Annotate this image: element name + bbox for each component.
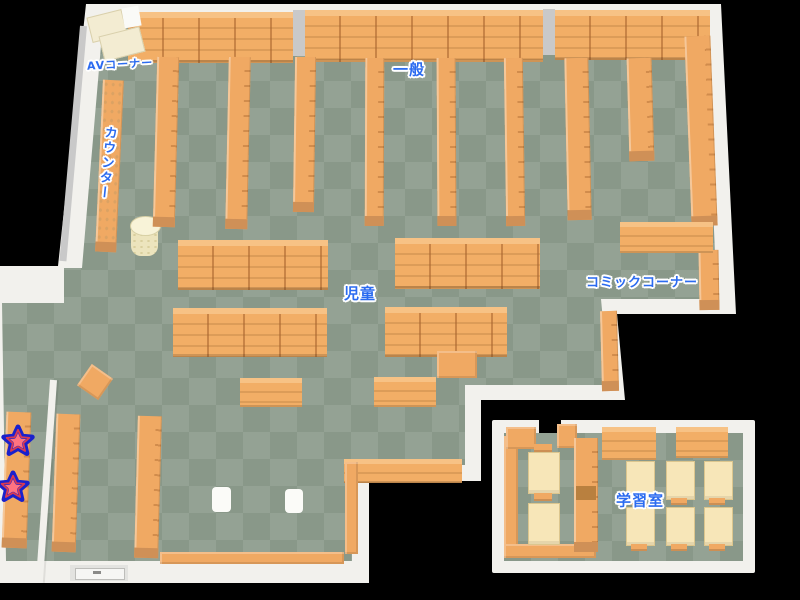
library-floor-map: AVコーナー 一般 カウンター 児童 コミックコーナー 学習室 (0, 0, 800, 600)
chair (671, 498, 687, 505)
chair (534, 493, 552, 501)
study-desk (666, 507, 695, 546)
bookshelf (225, 57, 251, 229)
chair (709, 498, 725, 505)
area-label-general[interactable]: 一般 (393, 59, 425, 80)
study-desk (666, 461, 695, 500)
study-desk (704, 461, 733, 500)
wall-bookshelf (345, 462, 358, 554)
star-marker[interactable] (1, 424, 35, 458)
study-bookshelf (602, 427, 656, 460)
study-desk (704, 507, 733, 546)
bookshelf (504, 58, 525, 226)
stool (212, 487, 231, 512)
wall-bookshelf-row (305, 10, 543, 62)
comic-bookshelf (620, 222, 713, 253)
bookshelf (134, 416, 162, 559)
bookshelf (293, 57, 316, 212)
entrance-door-panel (75, 568, 125, 580)
chair (631, 544, 647, 551)
low-bookshelf (178, 240, 328, 290)
picture-book-rack (374, 377, 436, 407)
bookshelf (627, 58, 655, 162)
study-counter (504, 436, 518, 554)
bookshelf (365, 58, 385, 226)
wall-bookshelf (160, 552, 344, 564)
picture-book-rack (240, 378, 302, 407)
area-label-comic-corner[interactable]: コミックコーナー (586, 272, 698, 291)
low-bookshelf (344, 459, 462, 483)
comic-bookshelf (600, 311, 619, 391)
chair (709, 544, 725, 551)
bookshelf (564, 58, 591, 220)
area-label-children[interactable]: 児童 (344, 283, 376, 304)
av-equipment (121, 6, 141, 29)
study-shelf (506, 427, 536, 449)
divider-gap (576, 486, 596, 500)
study-desk (626, 507, 655, 546)
wall-pillar (293, 10, 305, 56)
wall-bookshelf (698, 250, 719, 310)
study-table (528, 452, 560, 494)
low-bookshelf-end (437, 351, 477, 378)
bookshelf (52, 414, 81, 553)
area-label-study-room[interactable]: 学習室 (616, 490, 664, 511)
chair (534, 444, 552, 452)
low-bookshelf (385, 307, 507, 357)
bookshelf (437, 58, 457, 226)
bookshelf (153, 57, 179, 228)
study-bookshelf (676, 427, 728, 458)
star-marker[interactable] (0, 470, 30, 504)
low-bookshelf (173, 308, 327, 357)
door-handle (93, 571, 101, 574)
study-table (528, 503, 560, 545)
wall-pillar (543, 9, 555, 55)
stool (285, 489, 303, 513)
chair (671, 544, 687, 551)
low-bookshelf (395, 238, 540, 289)
